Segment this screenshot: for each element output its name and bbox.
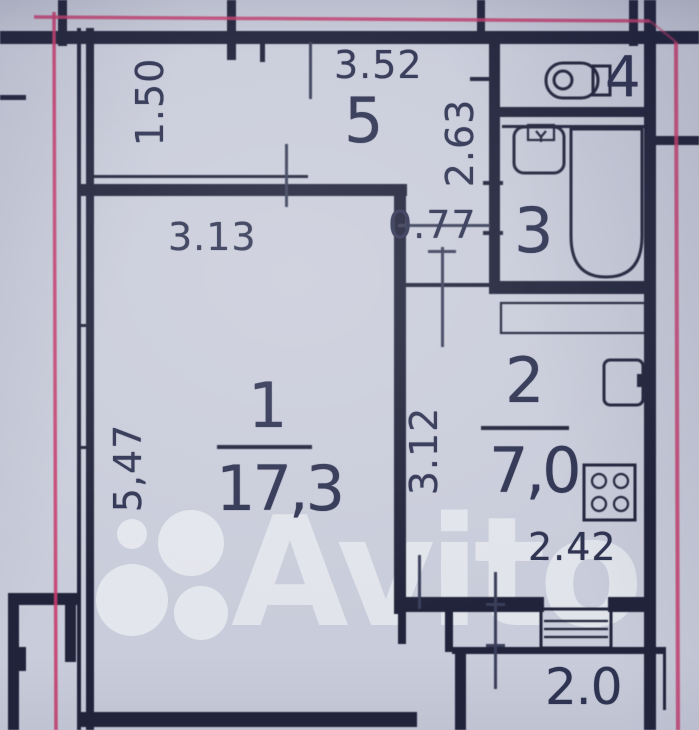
dim-kitchen-width: 2.42	[528, 528, 617, 566]
kitchen-counter-outline	[501, 303, 645, 333]
room-hall-number: 5	[344, 90, 383, 152]
room-bath-number: 3	[514, 200, 553, 262]
dim-hall-width: 3.52	[334, 46, 423, 84]
fridge-icon	[604, 360, 645, 405]
floor-plan-photo: Avito	[0, 0, 699, 730]
dim-hall-depth: 1.50	[131, 57, 169, 147]
room-living-area: 17,3	[216, 458, 342, 520]
room-kitchen-area: 7,0	[489, 440, 579, 502]
balcony-window-icon	[541, 609, 611, 648]
dim-kitchen-depth: 3.12	[405, 403, 443, 499]
dim-living-depth: 5,47	[109, 420, 147, 516]
dim-living-width: 3.13	[168, 218, 257, 256]
dim-bath-block-depth: 2.63	[441, 98, 479, 188]
room-kitchen-number: 2	[505, 350, 544, 412]
room-wc-number: 4	[605, 50, 641, 106]
balcony-area: 2.0	[545, 662, 622, 712]
toilet-icon	[514, 125, 564, 173]
dim-corridor-width: 0.77	[388, 206, 477, 244]
room-living-number: 1	[248, 375, 287, 437]
sink-icon	[546, 63, 610, 98]
stove-icon	[584, 465, 635, 520]
bathtub-icon	[571, 129, 642, 277]
